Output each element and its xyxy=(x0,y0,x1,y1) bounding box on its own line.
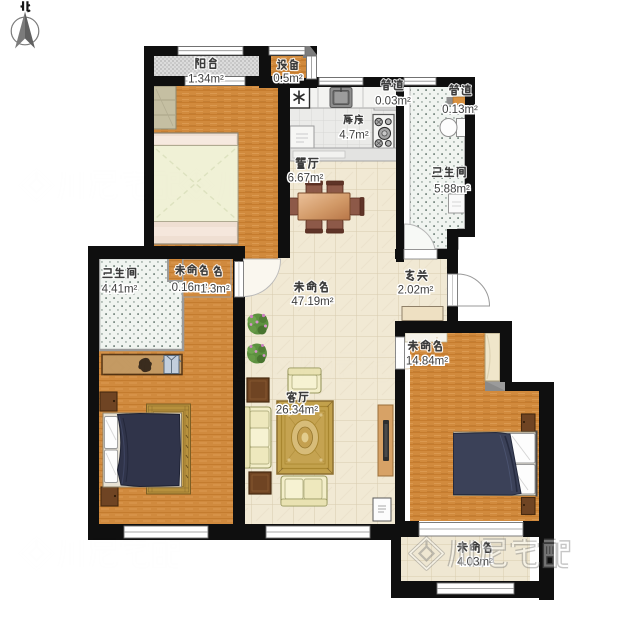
svg-text:0.03m²: 0.03m² xyxy=(375,96,411,108)
svg-text:4.41m²: 4.41m² xyxy=(102,284,138,296)
svg-text:47.19m²: 47.19m² xyxy=(291,296,333,308)
svg-text:26.34m²: 26.34m² xyxy=(276,405,318,417)
svg-text:1.3m²: 1.3m² xyxy=(200,284,230,296)
svg-text:2.02m²: 2.02m² xyxy=(398,285,434,297)
svg-text:1.34m²: 1.34m² xyxy=(188,74,224,86)
svg-text:5.88m²: 5.88m² xyxy=(434,184,470,196)
svg-text:4.7m²: 4.7m² xyxy=(339,130,369,142)
svg-text:0.5m²: 0.5m² xyxy=(273,73,303,85)
svg-text:0.13m²: 0.13m² xyxy=(442,104,478,116)
